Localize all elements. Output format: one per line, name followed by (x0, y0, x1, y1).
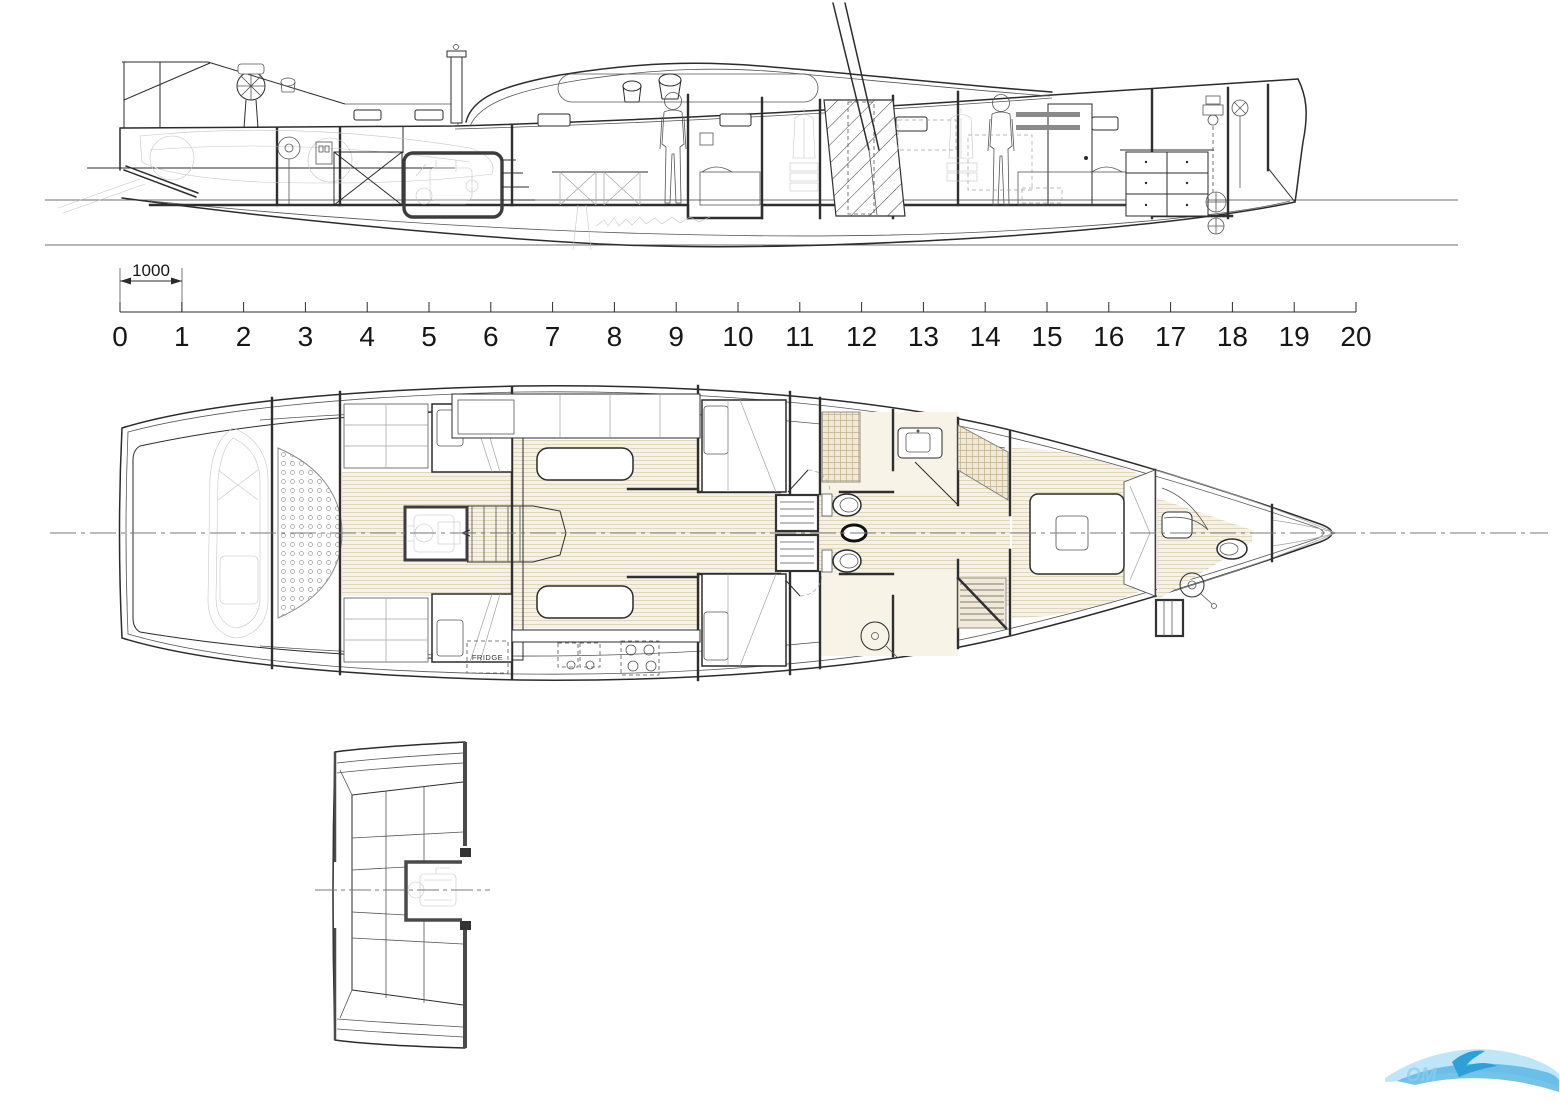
ruler-tick-label: 0 (112, 321, 128, 352)
saloon-table-port (537, 448, 633, 480)
hanging-locker-forward (947, 108, 977, 181)
cabin-sole (150, 205, 1232, 218)
deck-plan-view: FRIDGE (50, 386, 1548, 680)
hull-windows (354, 110, 1118, 131)
engine-room-plan (405, 507, 467, 560)
waterlines (45, 200, 1458, 245)
engine-room-profile (404, 153, 535, 217)
ruler-tick-label: 6 (483, 321, 499, 352)
human-figure-forward-cabin (988, 95, 1014, 206)
ruler-tick-label: 14 (970, 321, 1001, 352)
antenna-post (447, 45, 466, 124)
ruler-tick-label: 15 (1031, 321, 1062, 352)
fridge-label: FRIDGE (472, 653, 503, 662)
stored-tender-profile (140, 130, 493, 183)
profile-view (45, 3, 1458, 250)
watermark-wave-logo: OM (1385, 1049, 1559, 1092)
stern-railing (122, 62, 458, 128)
ruler-tick-label: 13 (908, 321, 939, 352)
section-view (315, 742, 490, 1048)
ruler-tick-label: 1 (174, 321, 190, 352)
saloon-table-starboard (537, 586, 633, 618)
chest-of-drawers-profile (1120, 150, 1214, 216)
electrical-panel (316, 142, 332, 164)
scale-ruler: 1000 01234567891011121314151617181920 (112, 261, 1371, 352)
ruler-tick-label: 17 (1155, 321, 1186, 352)
x-braced-compartment (334, 152, 402, 205)
logo-partial-text: OM (1406, 1065, 1438, 1086)
ruler-tick-label: 5 (421, 321, 437, 352)
ruler-tick-label: 12 (846, 321, 877, 352)
steering-wheel-icon (237, 64, 265, 128)
guest-cabin-starboard (702, 574, 786, 666)
deck-winches (623, 74, 681, 102)
dimension-label: 1000 (132, 261, 170, 280)
ruler-tick-label: 4 (359, 321, 375, 352)
ruler-tick-label: 10 (722, 321, 753, 352)
drawing-canvas: 1000 01234567891011121314151617181920 (0, 0, 1560, 1103)
guest-cabin-port (702, 400, 786, 492)
ruler-tick-label: 2 (236, 321, 252, 352)
mast-bulkhead-hatched (824, 100, 905, 216)
ruler-tick-label: 20 (1340, 321, 1371, 352)
yacht-general-arrangement-drawing: 1000 01234567891011121314151617181920 (0, 0, 1560, 1103)
ruler-tick-label: 3 (298, 321, 314, 352)
mid-berth-profile (700, 133, 760, 205)
cabin-door-profile (1048, 104, 1092, 205)
hanging-locker-aft (790, 108, 818, 191)
slatted-locker-starboard (776, 535, 818, 571)
dimension-1000: 1000 (120, 261, 182, 312)
ruler-ticks: 01234567891011121314151617181920 (112, 302, 1371, 352)
ruler-tick-label: 8 (607, 321, 623, 352)
human-figure-saloon (660, 93, 686, 204)
ruler-tick-label: 16 (1093, 321, 1124, 352)
ruler-tick-label: 9 (668, 321, 684, 352)
ruler-tick-label: 7 (545, 321, 561, 352)
ruler-tick-label: 19 (1279, 321, 1310, 352)
cockpit-winch-icon (281, 78, 295, 92)
ruler-tick-label: 11 (785, 321, 814, 352)
life-ring-icon (278, 137, 300, 204)
ruler-tick-label: 18 (1217, 321, 1248, 352)
slatted-locker-port (776, 495, 818, 531)
engine-box-section (406, 862, 462, 920)
aft-cabin-starboard (344, 594, 512, 662)
